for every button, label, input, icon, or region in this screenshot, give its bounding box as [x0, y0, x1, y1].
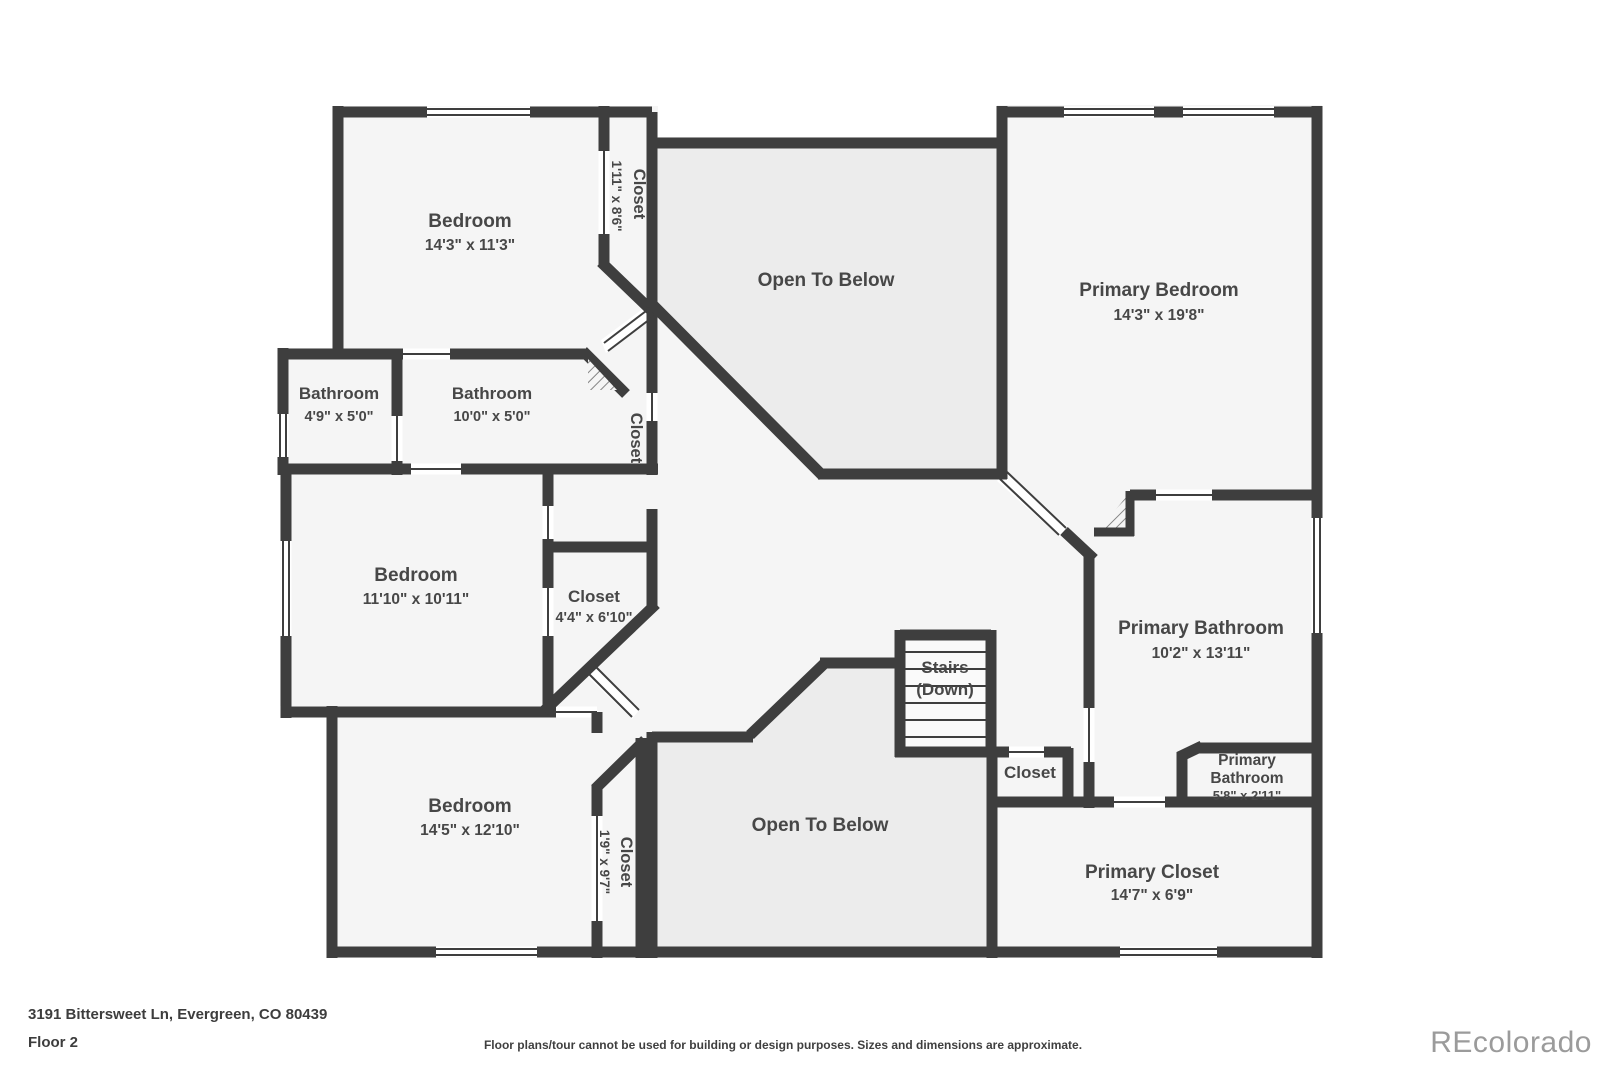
- room-label-open-to-below-top: Open To Below: [758, 270, 895, 291]
- room-label-primary-bathroom-small-2: Bathroom: [1210, 770, 1283, 787]
- room-dims-bedroom-top-left: 14'3" x 11'3": [425, 237, 515, 254]
- recolorado-watermark: REcolorado: [1430, 1026, 1592, 1060]
- room-label-bedroom-bottom-left: Bedroom: [428, 796, 511, 817]
- room-label-closet-bath: Closet: [627, 413, 645, 464]
- room-dims-bathroom-hall: 10'0" x 5'0": [453, 409, 530, 425]
- room-dims-primary-bathroom: 10'2" x 13'11": [1152, 645, 1251, 662]
- room-dims-primary-bathroom-small: 5'8" x 2'11": [1213, 788, 1281, 803]
- room-label-closet-mid: Closet: [568, 587, 620, 606]
- room-label-closet-bottom: Closet: [617, 837, 635, 888]
- room-label-closet-top: Closet: [630, 169, 648, 220]
- room-label-closet-stairs: Closet: [1004, 763, 1056, 782]
- floor-plan-page: Bedroom 14'3" x 11'3" Closet 1'11" x 8'6…: [0, 0, 1600, 1066]
- footer-address: 3191 Bittersweet Ln, Evergreen, CO 80439: [28, 1006, 327, 1023]
- room-label-bedroom-top-left: Bedroom: [428, 211, 511, 232]
- room-label-bathroom-hall: Bathroom: [452, 384, 532, 403]
- room-dims-closet-mid: 4'4" x 6'10": [555, 610, 632, 626]
- room-label-primary-bathroom: Primary Bathroom: [1118, 618, 1284, 639]
- room-label-stairs: Stairs: [921, 658, 968, 677]
- room-dims-bathroom-small: 4'9" x 5'0": [304, 409, 373, 425]
- room-label-primary-bathroom-small-1: Primary: [1218, 752, 1276, 769]
- room-dims-primary-closet: 14'7" x 6'9": [1111, 887, 1193, 904]
- room-label-open-to-below-bottom: Open To Below: [752, 815, 889, 836]
- room-label-primary-closet: Primary Closet: [1085, 862, 1220, 883]
- room-label-bathroom-small: Bathroom: [299, 384, 379, 403]
- footer-disclaimer: Floor plans/tour cannot be used for buil…: [400, 1038, 1166, 1052]
- floor-plan-canvas: Bedroom 14'3" x 11'3" Closet 1'11" x 8'6…: [0, 0, 1600, 1066]
- room-label-bedroom-mid-left: Bedroom: [374, 565, 457, 586]
- room-label-primary-bedroom: Primary Bedroom: [1079, 280, 1238, 301]
- room-dims-primary-bedroom: 14'3" x 19'8": [1113, 307, 1204, 324]
- room-dims-bedroom-bottom-left: 14'5" x 12'10": [420, 822, 520, 839]
- room-dims-bedroom-mid-left: 11'10" x 10'11": [363, 591, 470, 608]
- room-dims-closet-top: 1'11" x 8'6": [609, 160, 624, 231]
- room-label-stairs-down: (Down): [916, 680, 974, 699]
- footer-floor-label: Floor 2: [28, 1034, 78, 1051]
- room-dims-closet-bottom: 1'9" x 9'7": [597, 830, 612, 894]
